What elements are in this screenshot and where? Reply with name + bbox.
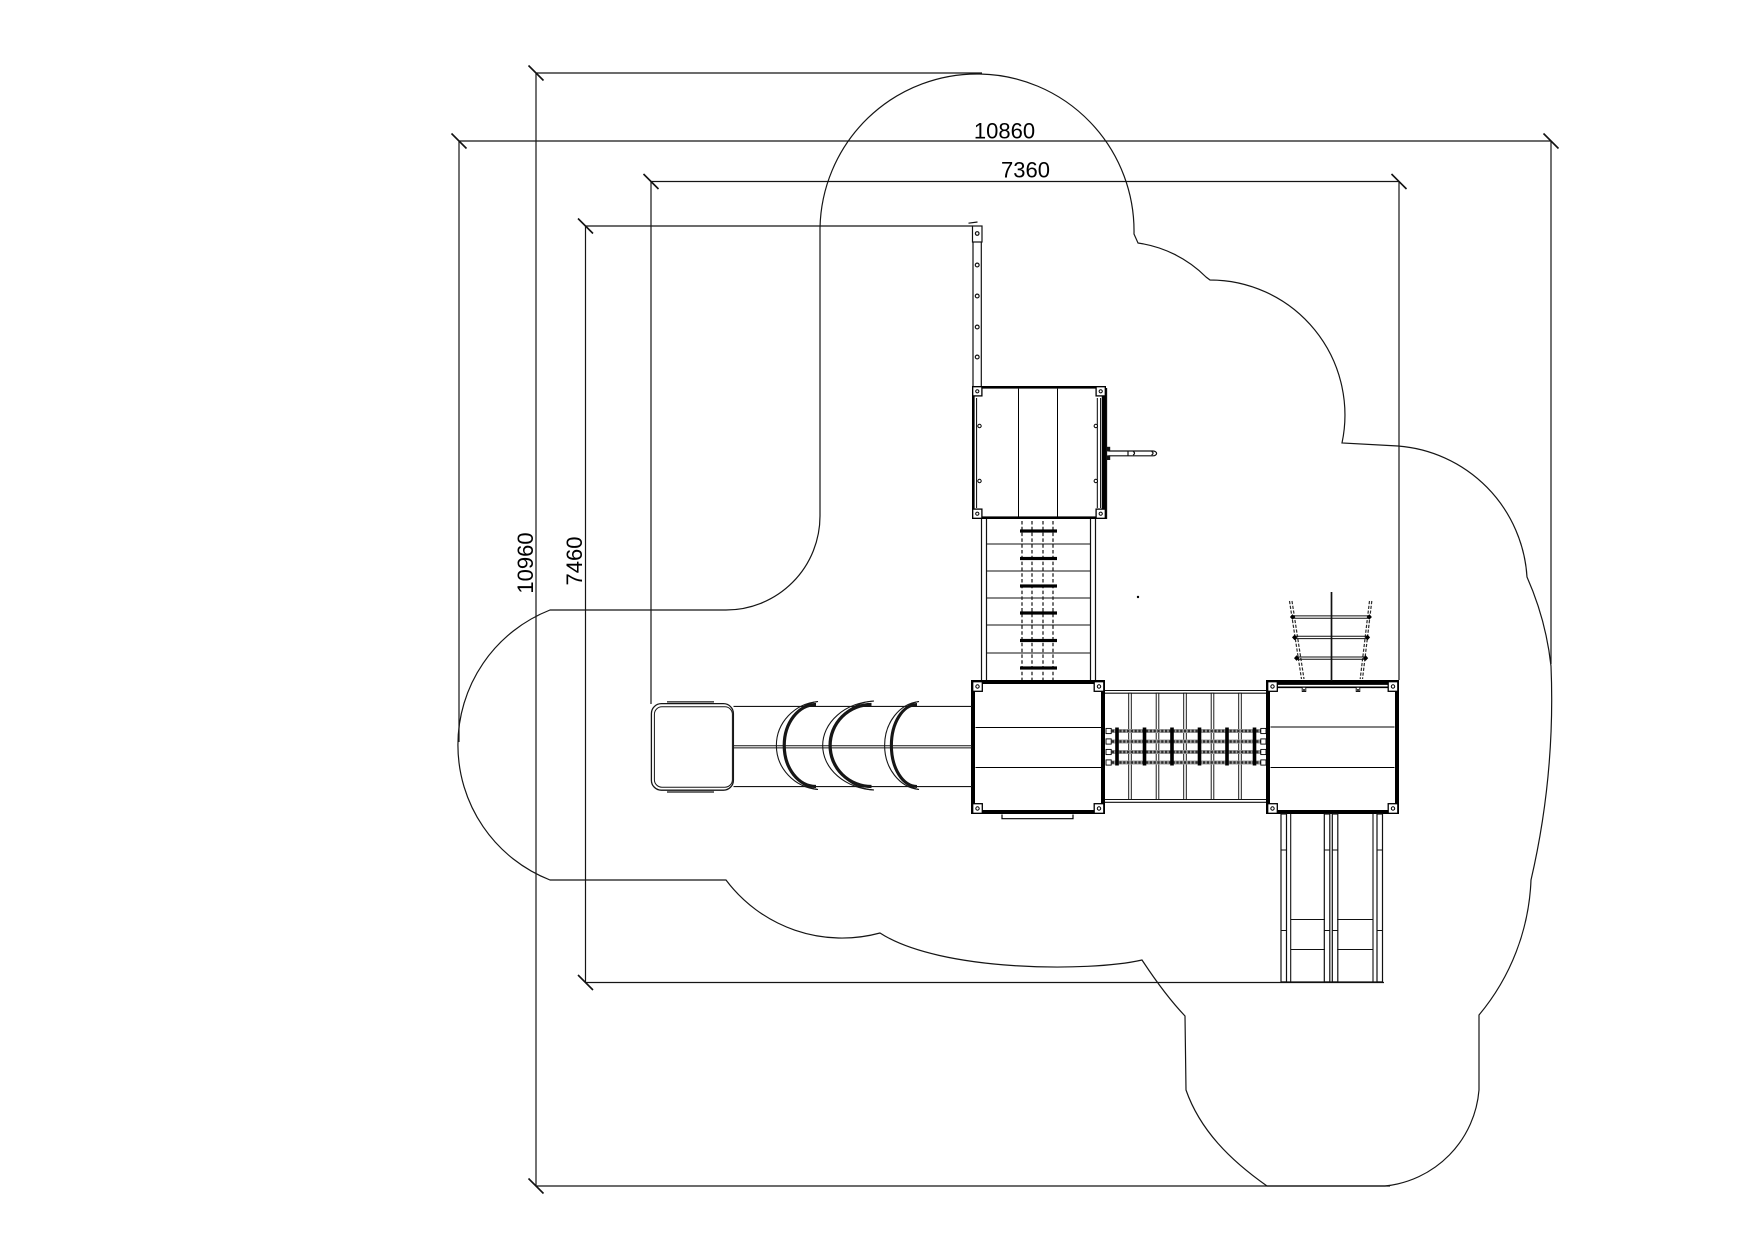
svg-text:10960: 10960: [513, 532, 538, 593]
svg-text:7460: 7460: [562, 537, 587, 586]
svg-text:10860: 10860: [974, 119, 1035, 144]
svg-text:7360: 7360: [1001, 158, 1050, 183]
